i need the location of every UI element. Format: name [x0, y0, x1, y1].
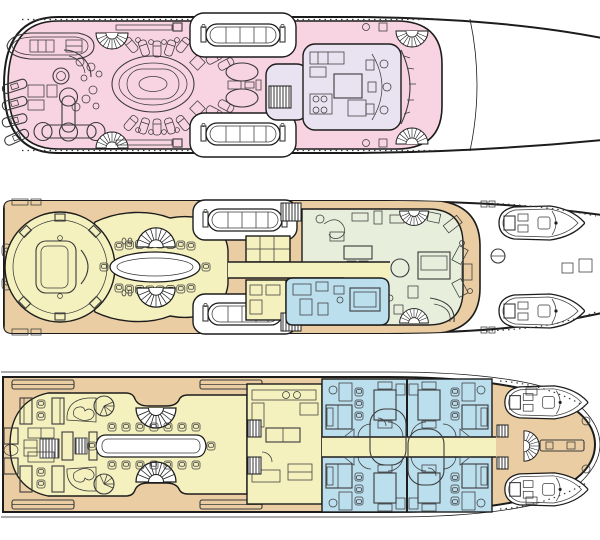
circular-skylounge — [5, 212, 115, 322]
study — [286, 278, 389, 325]
deck-main — [1, 372, 600, 517]
galley — [247, 384, 322, 504]
piano — [40, 439, 59, 458]
stairs-up-port — [281, 203, 301, 221]
deck-upper — [2, 199, 600, 335]
deck-plan-canvas — [0, 0, 600, 540]
yacht-deck-plan — [0, 0, 600, 540]
guest-cabins — [322, 379, 496, 512]
companionway-stairs — [269, 86, 291, 108]
corridor — [228, 262, 390, 278]
galley-stairs-down — [248, 457, 261, 474]
lifeboat-recess-port — [190, 13, 296, 57]
deck-sun — [1, 13, 600, 157]
galley-stairs-up — [248, 420, 261, 437]
